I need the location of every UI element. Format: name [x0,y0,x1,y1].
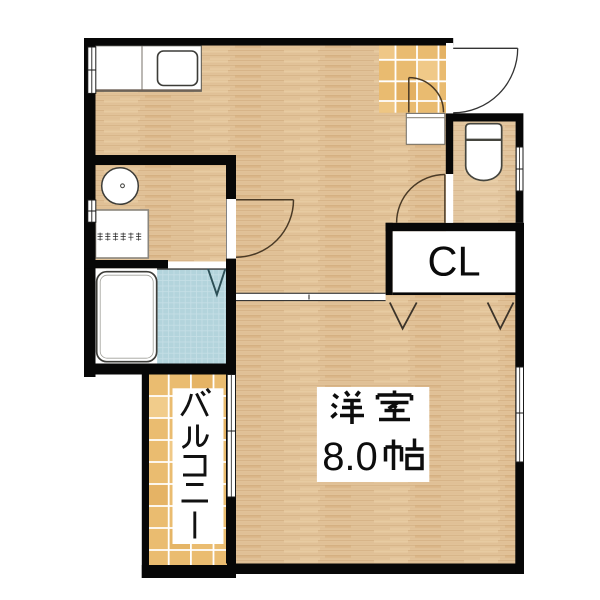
svg-text:CL: CL [427,238,480,285]
svg-text:8.0: 8.0 [322,435,378,479]
